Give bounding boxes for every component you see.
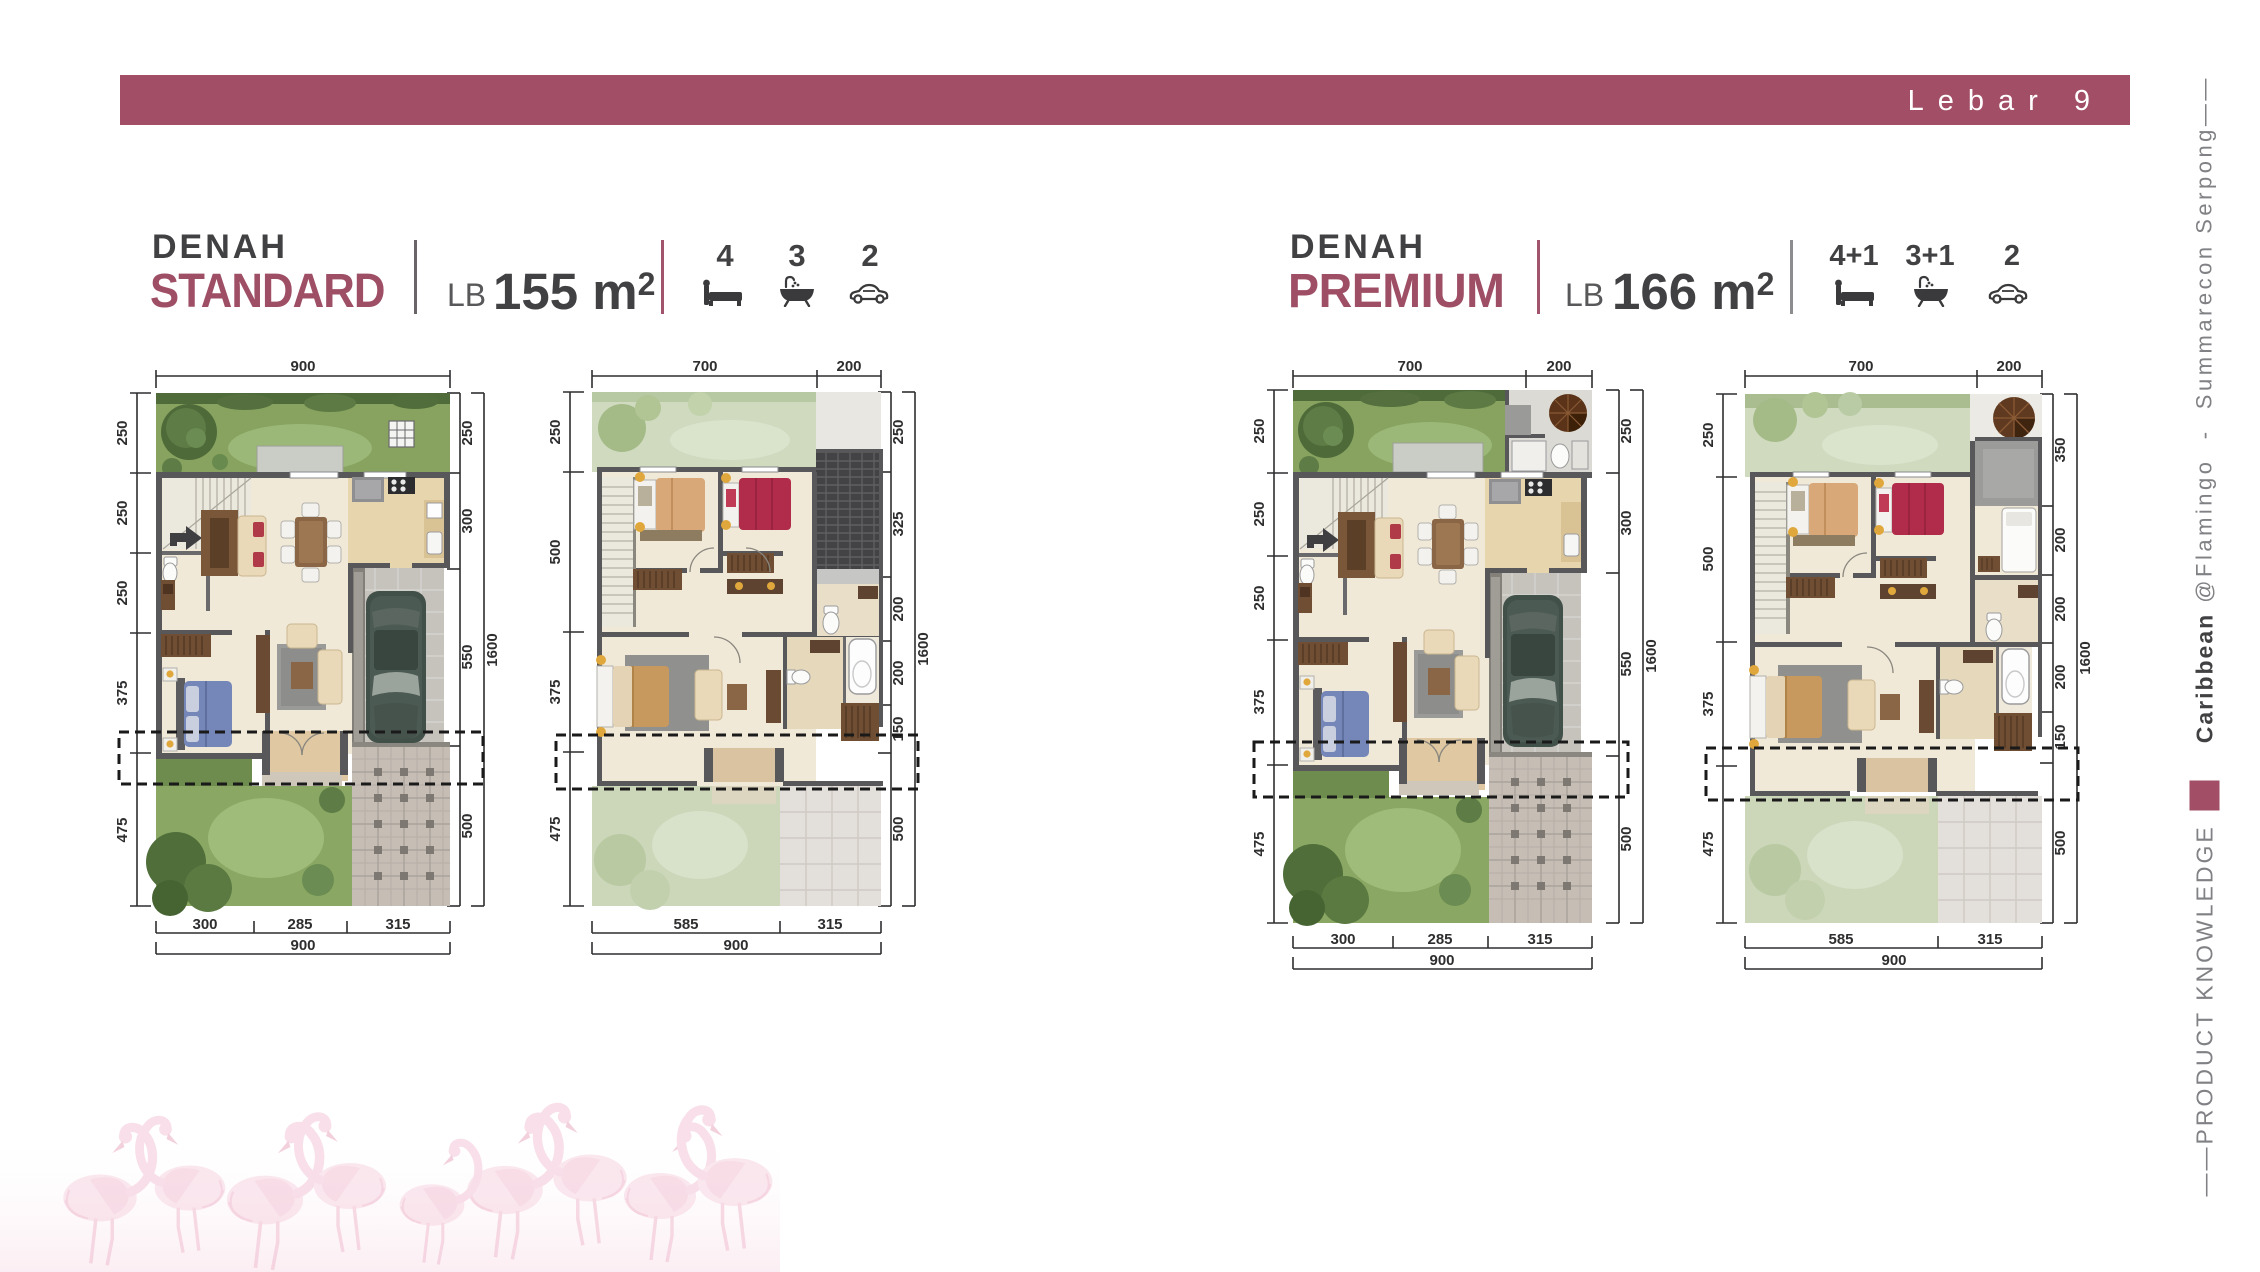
svg-text:315: 315 — [385, 916, 410, 933]
svg-text:200: 200 — [836, 358, 861, 375]
svg-text:900: 900 — [1881, 952, 1906, 969]
svg-text:315: 315 — [817, 916, 842, 933]
svg-text:250: 250 — [114, 500, 131, 525]
svg-text:500: 500 — [2052, 830, 2069, 855]
svg-text:200: 200 — [1546, 358, 1571, 375]
svg-text:900: 900 — [290, 937, 315, 954]
svg-text:375: 375 — [547, 679, 564, 704]
svg-text:285: 285 — [1427, 931, 1452, 948]
svg-text:250: 250 — [1251, 418, 1268, 443]
svg-text:500: 500 — [890, 816, 907, 841]
svg-text:1600: 1600 — [2077, 641, 2094, 674]
svg-text:250: 250 — [114, 420, 131, 445]
svg-text:900: 900 — [723, 937, 748, 954]
svg-text:250: 250 — [890, 419, 907, 444]
svg-text:585: 585 — [1828, 931, 1853, 948]
svg-text:900: 900 — [290, 358, 315, 375]
svg-text:500: 500 — [1618, 826, 1635, 851]
svg-text:375: 375 — [1700, 691, 1717, 716]
svg-text:550: 550 — [1618, 651, 1635, 676]
svg-text:150: 150 — [2052, 724, 2069, 749]
svg-text:300: 300 — [459, 508, 476, 533]
svg-text:300: 300 — [192, 916, 217, 933]
svg-text:250: 250 — [547, 419, 564, 444]
svg-text:285: 285 — [287, 916, 312, 933]
svg-text:1600: 1600 — [484, 633, 501, 666]
svg-text:300: 300 — [1330, 931, 1355, 948]
svg-text:200: 200 — [2052, 527, 2069, 552]
svg-text:250: 250 — [1618, 418, 1635, 443]
svg-text:475: 475 — [547, 816, 564, 841]
svg-text:350: 350 — [2052, 437, 2069, 462]
svg-text:375: 375 — [1251, 689, 1268, 714]
svg-text:550: 550 — [459, 644, 476, 669]
svg-text:200: 200 — [890, 660, 907, 685]
svg-text:315: 315 — [1527, 931, 1552, 948]
svg-text:700: 700 — [692, 358, 717, 375]
svg-text:900: 900 — [1429, 952, 1454, 969]
svg-text:1600: 1600 — [915, 632, 932, 665]
svg-text:250: 250 — [1251, 585, 1268, 610]
svg-text:200: 200 — [2052, 664, 2069, 689]
svg-text:150: 150 — [890, 716, 907, 741]
svg-text:500: 500 — [459, 813, 476, 838]
svg-text:325: 325 — [890, 511, 907, 536]
svg-text:475: 475 — [114, 817, 131, 842]
svg-text:250: 250 — [1700, 422, 1717, 447]
svg-text:700: 700 — [1397, 358, 1422, 375]
svg-text:200: 200 — [2052, 596, 2069, 621]
svg-text:500: 500 — [1700, 546, 1717, 571]
svg-text:475: 475 — [1700, 831, 1717, 856]
svg-text:200: 200 — [890, 596, 907, 621]
svg-text:475: 475 — [1251, 831, 1268, 856]
svg-text:315: 315 — [1977, 931, 2002, 948]
svg-text:1600: 1600 — [1643, 639, 1660, 672]
svg-text:585: 585 — [673, 916, 698, 933]
svg-text:250: 250 — [114, 580, 131, 605]
svg-text:250: 250 — [459, 420, 476, 445]
svg-text:500: 500 — [547, 539, 564, 564]
svg-text:300: 300 — [1618, 510, 1635, 535]
svg-text:250: 250 — [1251, 501, 1268, 526]
svg-text:375: 375 — [114, 680, 131, 705]
svg-text:200: 200 — [1996, 358, 2021, 375]
svg-text:700: 700 — [1848, 358, 1873, 375]
